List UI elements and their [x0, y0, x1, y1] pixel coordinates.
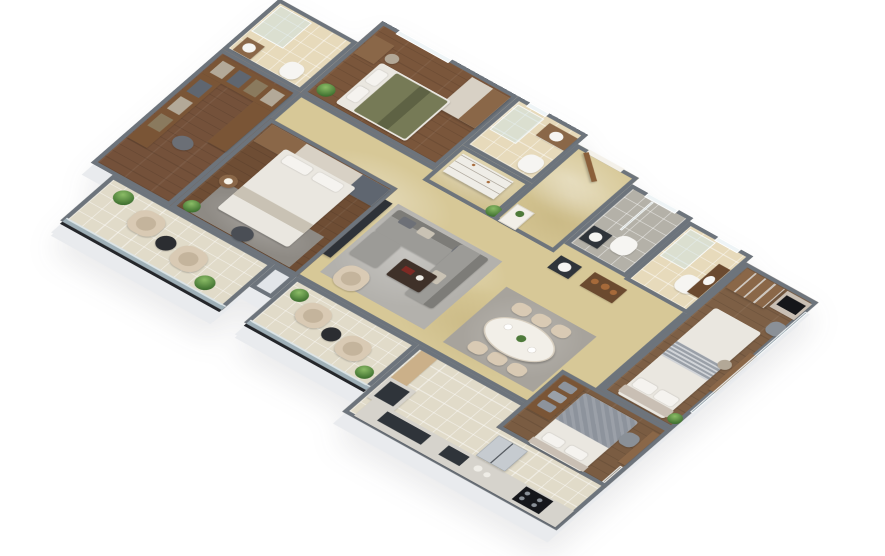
glass-shower	[251, 6, 312, 49]
table-lamp-icon	[222, 177, 235, 186]
shelf-pillow	[547, 390, 568, 404]
floor-plan-stage	[0, 0, 885, 556]
armchair-seat	[337, 269, 365, 289]
drawer-handle-icon	[486, 180, 491, 183]
folded-clothes	[147, 113, 173, 132]
toilet	[514, 152, 548, 176]
potted-plant	[313, 81, 340, 100]
display-shelf	[580, 272, 628, 303]
wash-basin	[579, 225, 613, 249]
coffee-table-bowl	[414, 274, 425, 282]
burner-icon	[524, 491, 532, 496]
window-wall	[602, 466, 623, 483]
flower-vase-icon	[513, 210, 526, 219]
wash-basin-icon	[555, 261, 574, 274]
drawer-handle-icon	[471, 163, 476, 166]
shelf-pillow	[536, 399, 557, 413]
vanity-sink	[536, 123, 578, 151]
armchair-seat	[132, 214, 160, 234]
armchair-seat	[339, 339, 367, 359]
sink-basin-icon	[701, 274, 718, 286]
folded-clothes	[186, 79, 212, 98]
crockery-icon	[472, 464, 485, 473]
shelf-pillow	[557, 381, 578, 395]
dinner-plate-icon	[502, 323, 515, 332]
prep-sink	[438, 445, 469, 466]
window	[714, 237, 741, 253]
ottoman	[168, 133, 198, 154]
burner-icon	[530, 502, 538, 507]
sink-basin-icon	[240, 41, 259, 54]
dinner-plate-icon	[525, 346, 538, 355]
wash-basin-counter	[547, 255, 582, 279]
window	[395, 30, 452, 63]
wash-basin	[233, 37, 265, 59]
folded-clothes	[260, 88, 286, 106]
sink-basin-icon	[586, 231, 605, 244]
tv-icon	[776, 295, 806, 315]
table-centerpiece-plant	[514, 334, 528, 344]
armchair-seat	[174, 249, 202, 269]
gas-cooktop	[512, 486, 554, 514]
armchair-seat	[299, 306, 327, 326]
sink-basin-icon	[546, 130, 566, 144]
folded-clothes	[167, 96, 193, 115]
page-background: { "scene": { "description": "3D isometri…	[0, 0, 885, 556]
apartment-3d-scene	[3, 0, 830, 537]
crockery-icon	[482, 471, 492, 478]
toilet	[606, 233, 642, 258]
copper-pot-icon	[608, 289, 618, 296]
burner-icon	[536, 498, 544, 503]
coffee-table-books	[401, 266, 416, 276]
copper-pot-icon	[589, 278, 600, 286]
burner-icon	[518, 496, 526, 501]
potted-plant	[109, 187, 139, 208]
toilet	[275, 59, 308, 82]
striped-runner	[661, 341, 723, 381]
kitchen-sink	[377, 411, 431, 444]
glass-partition	[620, 201, 654, 230]
